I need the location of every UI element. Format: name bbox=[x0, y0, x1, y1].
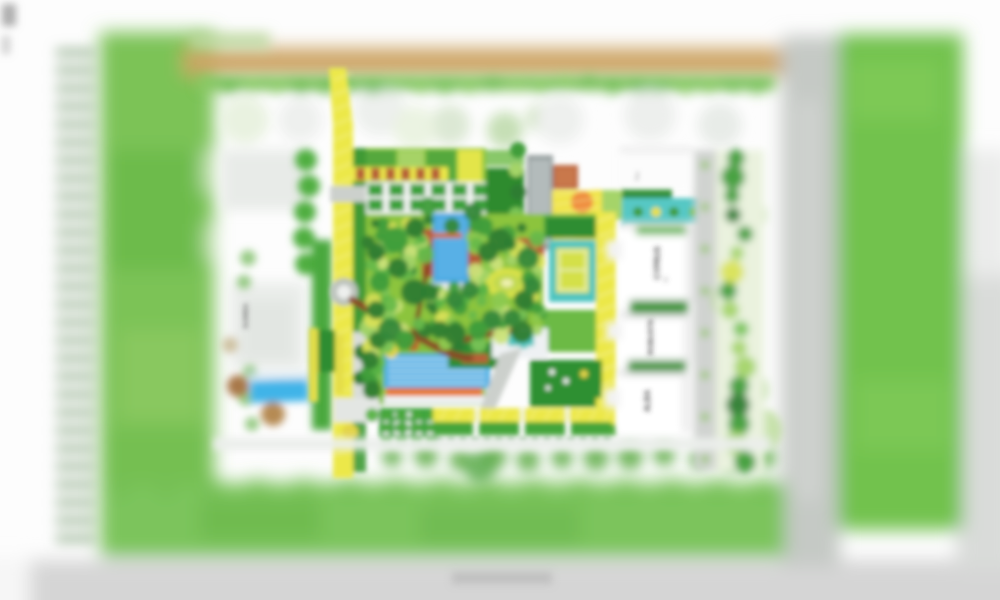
svg-text:T4: T4 bbox=[664, 277, 670, 283]
svg-text:SUMBA: SUMBA bbox=[243, 303, 250, 329]
svg-text:ROBUSTA: ROBUSTA bbox=[646, 318, 655, 355]
svg-text:CYPRUS: CYPRUS bbox=[653, 246, 662, 280]
svg-text:ALBA: ALBA bbox=[643, 390, 652, 412]
svg-text:Rac: Rac bbox=[635, 171, 641, 181]
